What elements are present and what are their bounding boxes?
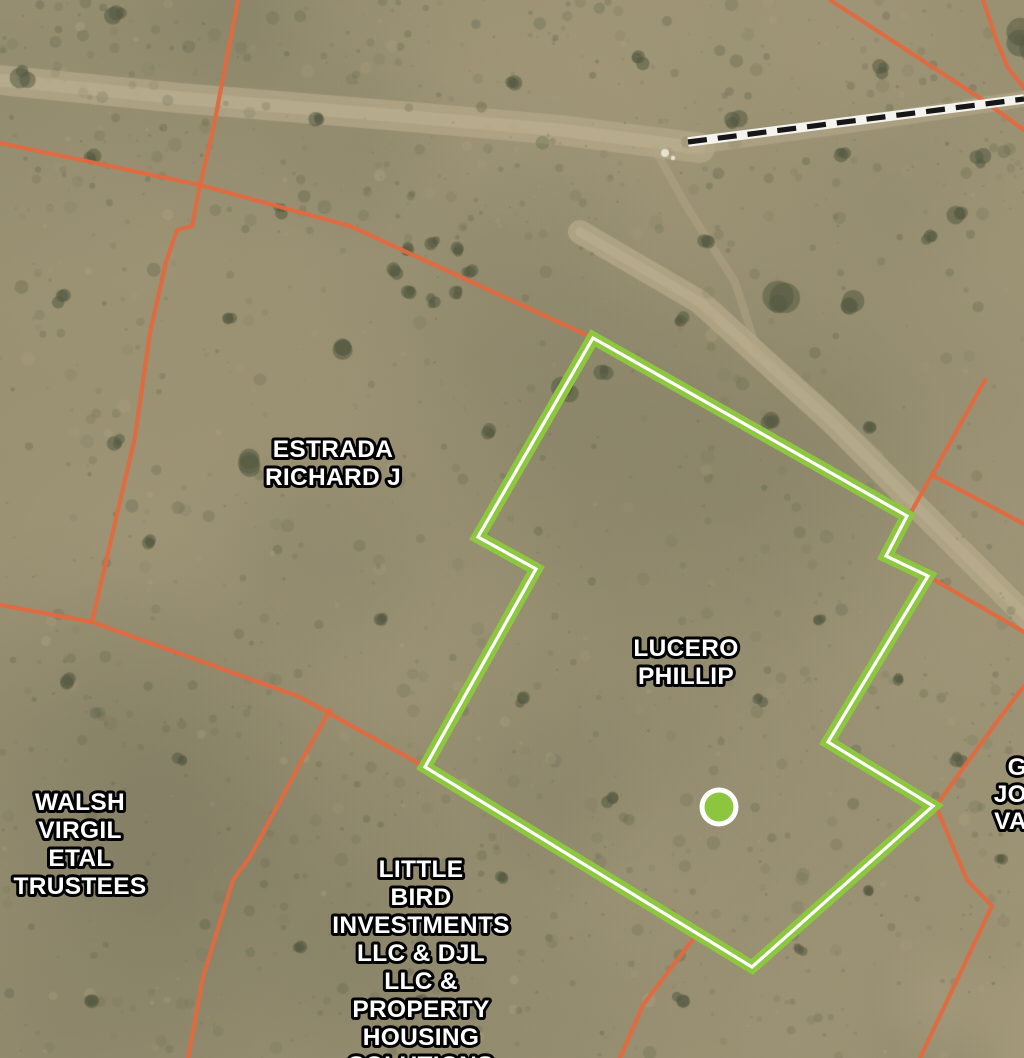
map-overlay: ESTRADARICHARD JLUCEROPHILLIPWALSHVIRGIL… [0,0,1024,1058]
parcel-boundary-w-mid [92,185,200,622]
parcel-marker[interactable] [700,788,739,827]
parcel-label-little-bird-investments: LITTLEBIRDINVESTMENTSLLC & DJLLLC &PROPE… [332,856,510,1058]
parcel-boundary-nw-diagonal [0,143,593,338]
parcel-boundary-se-boundary [920,806,992,1058]
parcel-boundary-n-vertical [200,0,238,185]
parcel-boundary-w-left-stub [0,605,92,622]
dashed-road-line [688,99,1024,142]
parcel-marker-dot[interactable] [705,793,734,822]
parcel-label-lucero-phillip: LUCEROPHILLIP [633,635,738,690]
parcel-label-walsh-virgil-etal-trustees: WALSHVIRGILETALTRUSTEES [13,789,146,900]
parcel-owner-labels: ESTRADARICHARD JLUCEROPHILLIPWALSHVIRGIL… [13,436,1024,1058]
parcel-boundary-ne-curve [983,0,1024,88]
parcel-label-estrada-richard-j: ESTRADARICHARD J [265,436,401,491]
parcel-boundary-e-upper-branch [932,475,1024,524]
parcel-boundary-e-upper [910,380,985,514]
parcel-boundary-s-branch [620,930,700,1058]
parcel-boundary-w-to-parcel [92,622,425,767]
parcel-boundary-walsh-east [188,710,330,1058]
parcel-boundary-lines [0,0,1024,1058]
map-view[interactable]: ESTRADARICHARD JLUCEROPHILLIPWALSHVIRGIL… [0,0,1024,1058]
parcel-label-right-edge-partial: GJOVA [994,754,1024,835]
parcel-boundary-e-mid [931,578,1024,632]
